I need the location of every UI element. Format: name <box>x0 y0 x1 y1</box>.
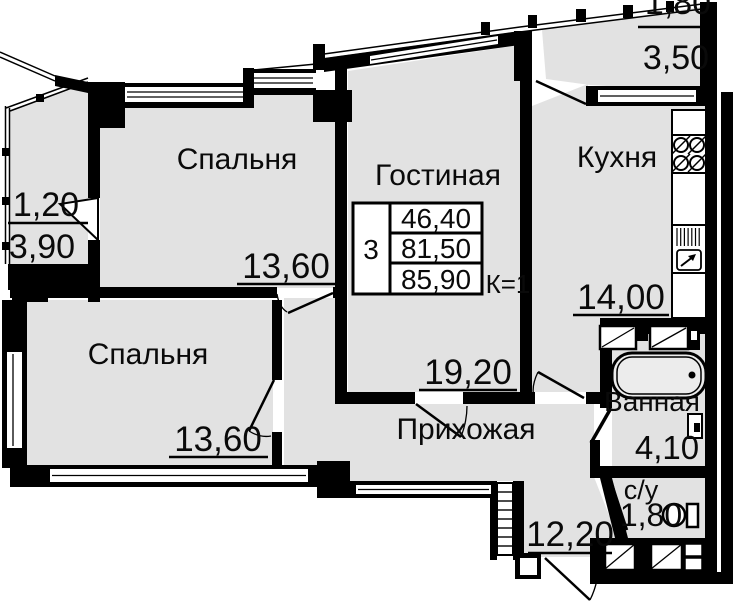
washing-machine-icon <box>600 326 636 349</box>
kitchen-label: Кухня <box>577 141 657 174</box>
bedroom-1-area: 13,60 <box>242 247 330 286</box>
bathroom-area: 4,10 <box>635 429 699 466</box>
bathroom-label: Ванная <box>604 386 700 417</box>
balcony-top-area-lower: 3,50 <box>643 39 709 77</box>
kitchen-window <box>598 90 696 102</box>
vent-shaft <box>497 483 513 555</box>
bedroom-2-side-window <box>7 352 22 448</box>
entry-step <box>520 558 537 575</box>
balcony-left-area-lower: 3,90 <box>9 228 75 266</box>
kitchen-floor-wedge <box>532 84 588 106</box>
wc-area: 1,80 <box>620 497 682 533</box>
balcony-left-area-upper: 1,20 <box>13 186 79 224</box>
cabinet-icon <box>650 326 688 349</box>
bedroom-2-bottom-window <box>50 469 308 482</box>
living-label: Гостиная <box>375 159 501 192</box>
bedroom-2-area: 13,60 <box>174 420 262 459</box>
table-area-no-balcony: 81,50 <box>401 233 471 264</box>
hallway-parapet-window <box>356 485 491 494</box>
hallway-area: 12,20 <box>526 515 614 554</box>
table-living-area: 46,40 <box>401 203 471 234</box>
kitchen-area: 14,00 <box>577 278 665 317</box>
floor-plan-drawing: Спальня 13,60 Гостиная 19,20 Кухня 14,00… <box>0 0 735 605</box>
living-area: 19,20 <box>424 353 512 392</box>
floor-plan: Спальня 13,60 Гостиная 19,20 Кухня 14,00… <box>0 0 735 605</box>
bedroom-1-label: Спальня <box>177 143 298 176</box>
table-total-area: 85,90 <box>401 264 471 295</box>
bedroom-2-label: Спальня <box>88 338 209 371</box>
hallway-label: Прихожая <box>396 413 535 446</box>
table-coefficient: К=1 <box>486 269 531 299</box>
balcony-top-area-upper: 1,80 <box>645 0 711 22</box>
table-rooms-count: 3 <box>363 234 379 265</box>
kitchen-counter <box>672 110 706 318</box>
